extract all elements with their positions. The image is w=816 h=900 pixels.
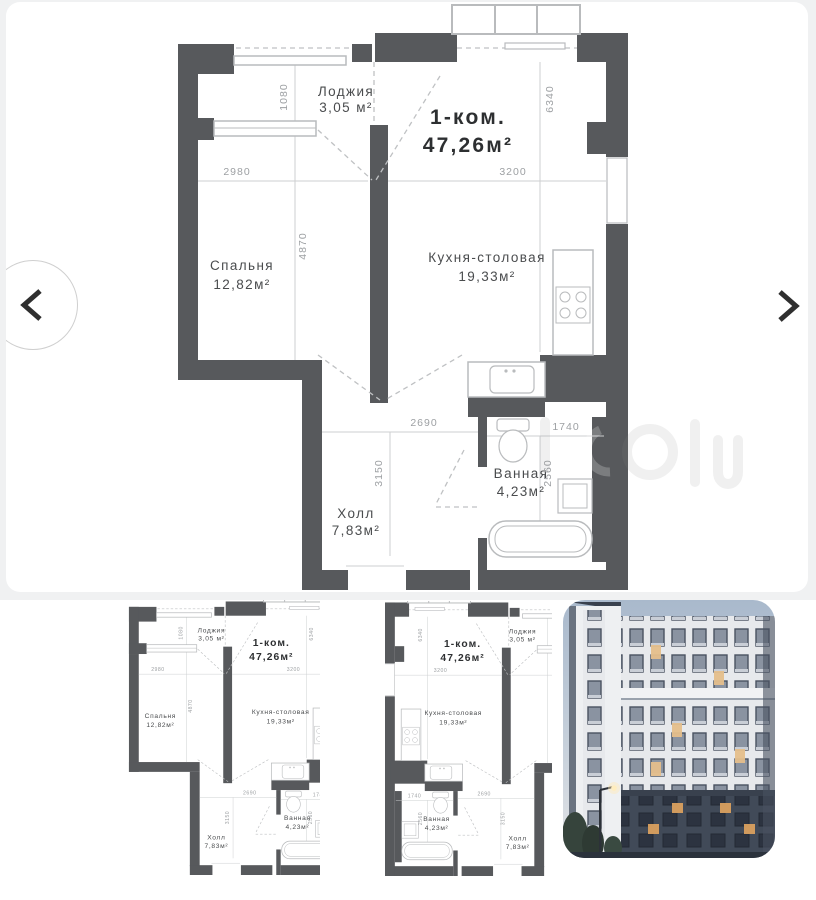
thumbnail-floorplan-2-mirrored[interactable] [385,601,552,876]
thumbnail-strip [0,600,816,900]
next-image-button[interactable] [766,284,808,328]
thumbnail-floorplan-1-image [125,600,320,875]
thumbnail-floorplan-1[interactable] [125,600,320,875]
thumbnail-building-photo[interactable] [563,600,775,858]
thumbnail-floorplan-2-image [385,601,552,876]
building-main-block [621,616,775,858]
building-photo-illustration [563,600,775,858]
chevron-right-icon [775,288,801,324]
chevron-left-icon [16,286,50,324]
listing-gallery-page: 1-ком. 47,26м² Лоджия 3,05 м² Спальня 12… [0,0,816,900]
main-photo-floorplan[interactable] [6,2,808,592]
main-photo-card [6,2,808,592]
